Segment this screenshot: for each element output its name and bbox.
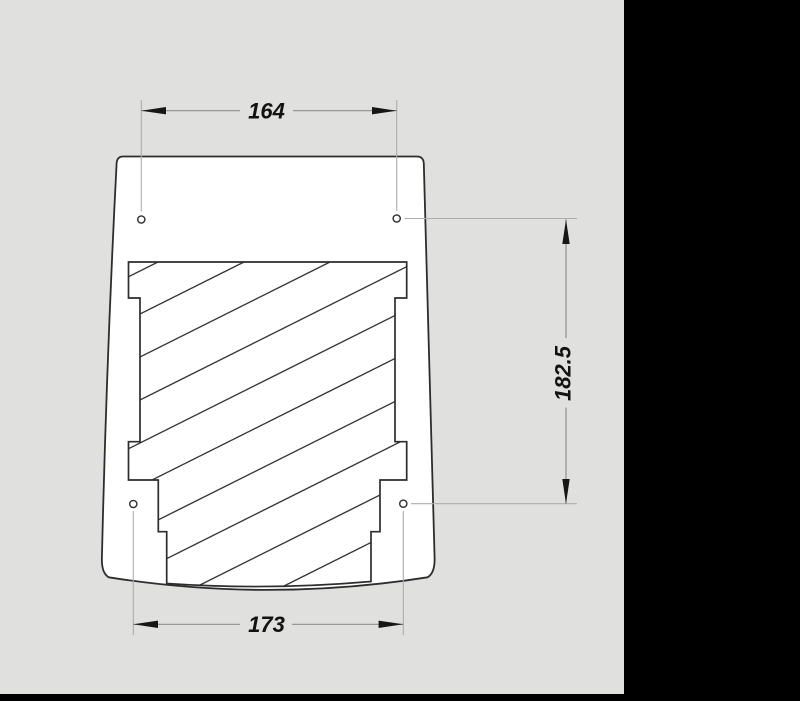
part-outline — [102, 157, 435, 590]
dimension-value-top: 164 — [248, 99, 285, 124]
bottom-bar — [0, 694, 800, 701]
dimension-value-right: 182.5 — [551, 345, 576, 401]
hole-top-left — [138, 216, 145, 223]
drawing-stage: 164 173 182.5 — [0, 0, 800, 701]
technical-drawing-canvas: 164 173 182.5 — [0, 0, 800, 701]
right-panel — [624, 0, 800, 701]
hole-bottom-left — [130, 500, 137, 507]
dimension-value-bottom: 173 — [248, 612, 285, 637]
hole-bottom-right — [400, 500, 407, 507]
hole-top-right — [393, 215, 400, 222]
